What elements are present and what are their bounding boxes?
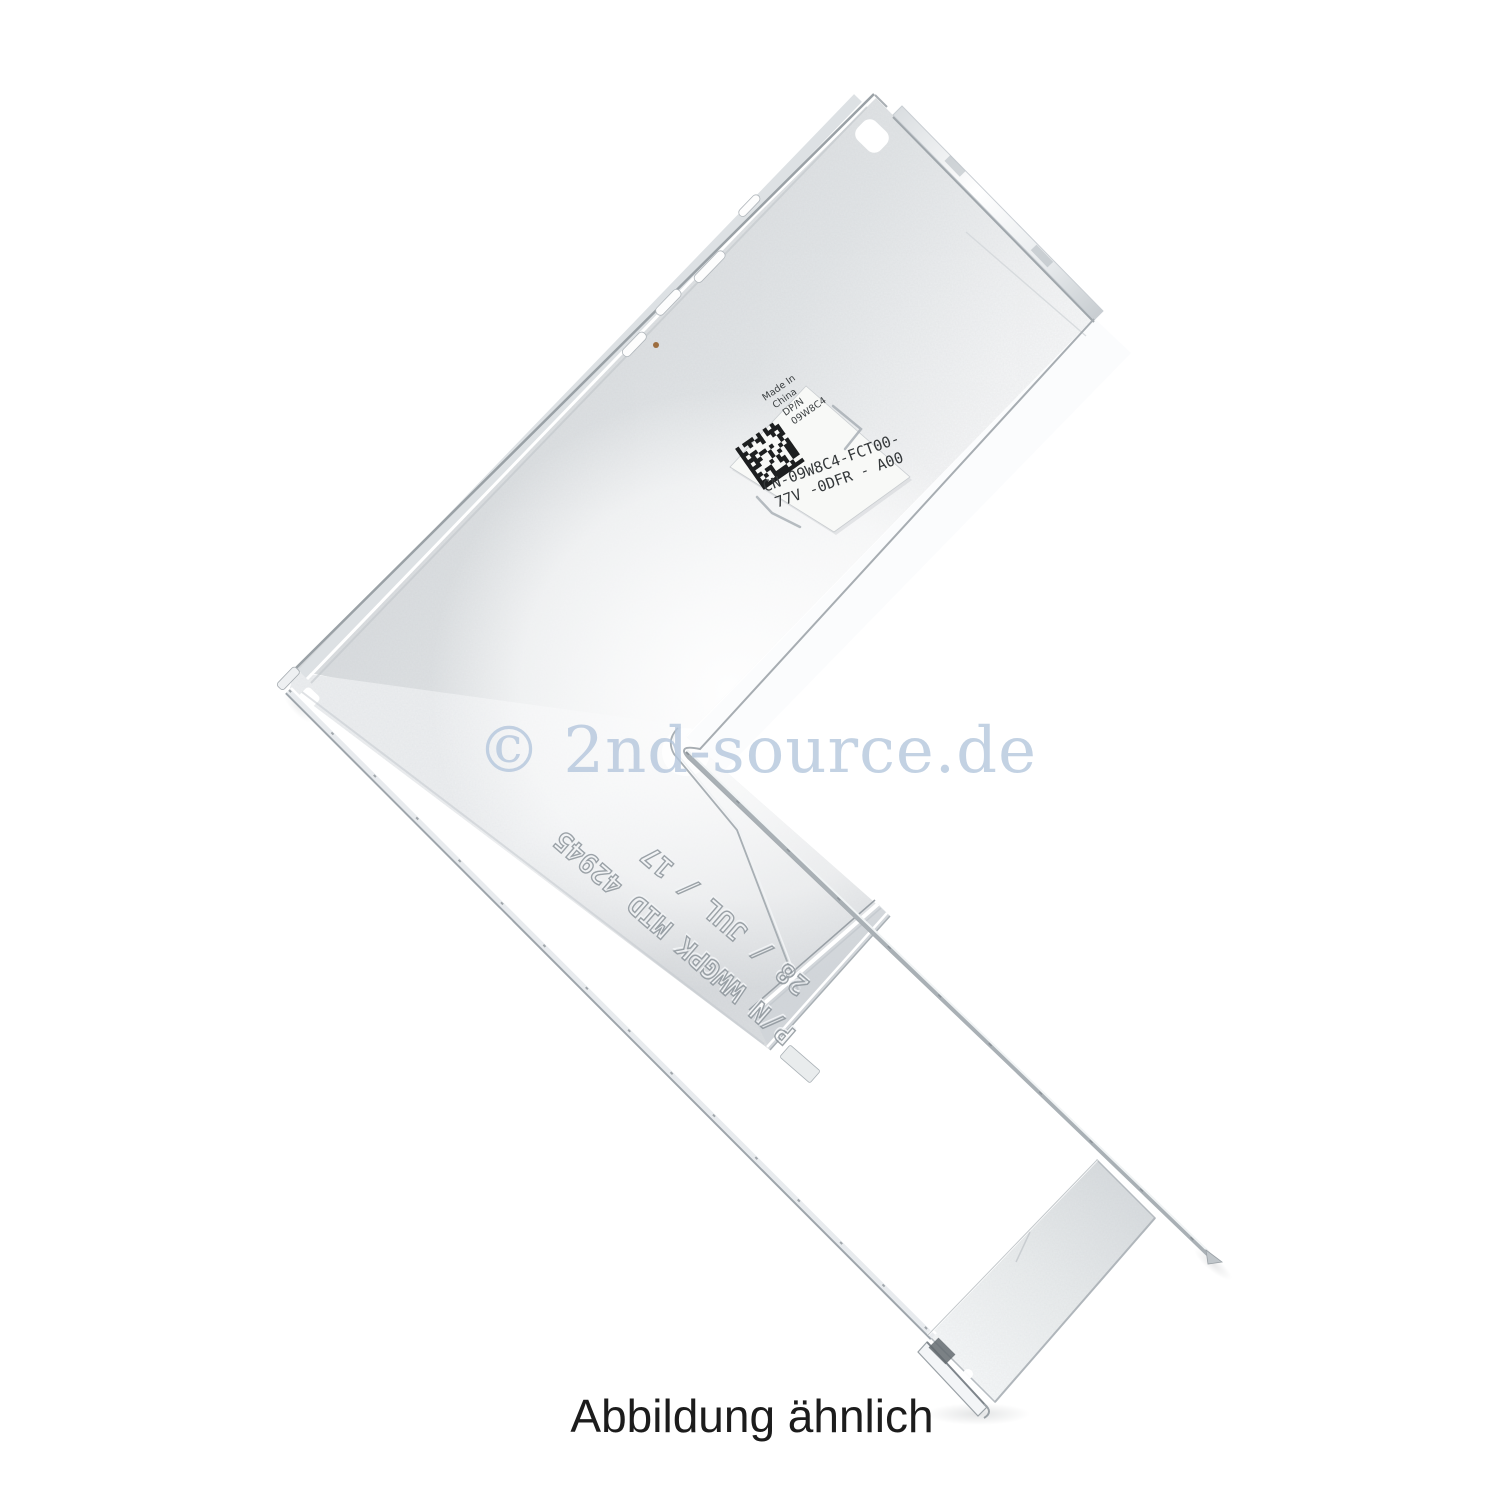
watermark-text: © 2nd-source.de: [477, 714, 1037, 788]
product-photo-stage: Made In China DP/N 09W8C4 CN-09W8C4-FCT0…: [0, 0, 1500, 1500]
rust-speck: [653, 342, 659, 348]
caption-text: Abbildung ähnlich: [570, 1390, 933, 1442]
bracket-photo: Made In China DP/N 09W8C4 CN-09W8C4-FCT0…: [0, 0, 1500, 1500]
